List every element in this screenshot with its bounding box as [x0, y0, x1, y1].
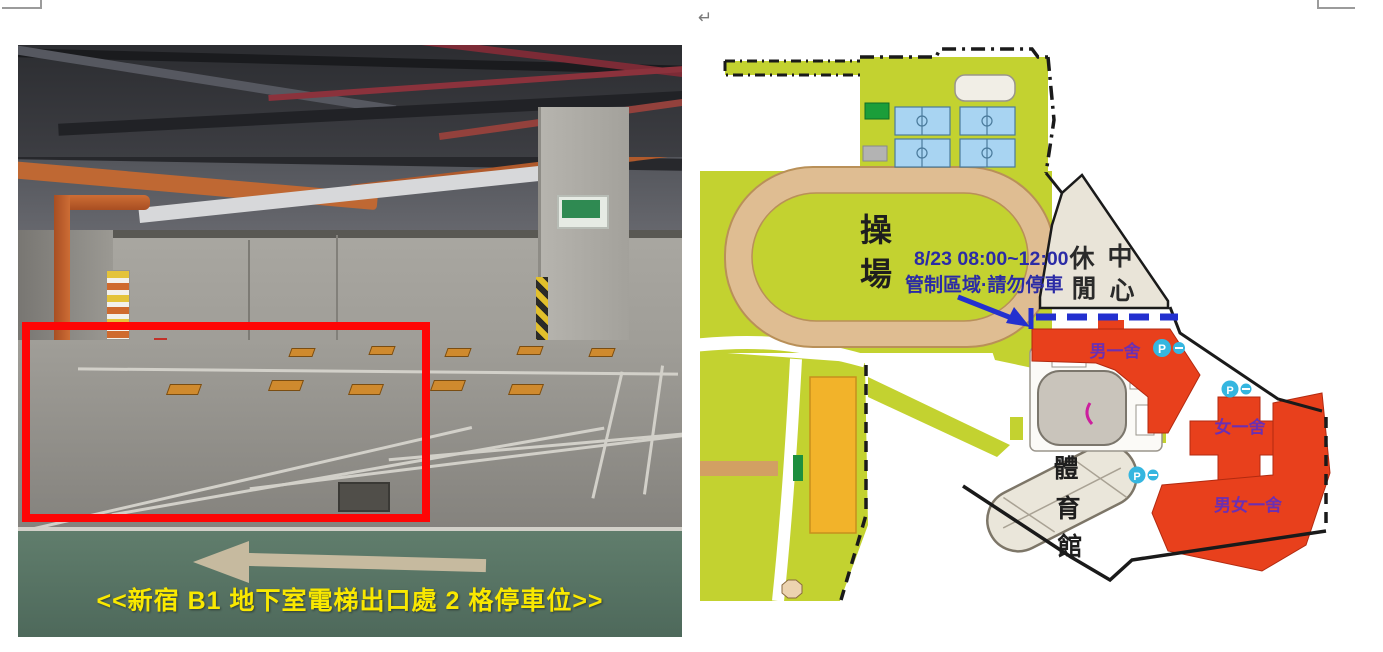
parking-line	[643, 365, 664, 494]
complex-round-hall	[1038, 371, 1126, 445]
wheel-stop	[516, 346, 543, 355]
notice-date-time: 8/23 08:00~12:00	[914, 248, 1069, 270]
photo-caption: <<新宿 B1 地下室電梯出口處 2 格停車位>>	[18, 581, 682, 617]
top-white-building	[955, 75, 1015, 101]
highlight-red-box	[22, 322, 430, 522]
parking-p-icon: P	[1158, 342, 1166, 356]
leisure-label: 中	[1107, 243, 1132, 271]
parking-p-icon: P	[1133, 471, 1140, 483]
floor-arrow-icon	[193, 541, 249, 583]
exit-sign	[557, 195, 609, 229]
dorm-female-1-label: 女一舍	[1215, 417, 1266, 437]
document-page: ↵	[0, 0, 1383, 652]
floor-arrow-tail	[246, 553, 486, 572]
campus-map: 操 場	[700, 45, 1360, 602]
map-green-arm	[725, 61, 860, 75]
small-hexagon-structure	[782, 580, 802, 598]
small-green-kiosk	[793, 455, 803, 481]
tan-road-stub	[700, 461, 778, 476]
notice-no-parking: 管制區域·請勿停車	[905, 273, 1063, 296]
leisure-label: 心	[1109, 277, 1134, 305]
lane-edge-line	[18, 527, 682, 531]
parking-marker-female-dorm: P	[1222, 381, 1252, 398]
dorm-male-female-1-label: 男女一舍	[1214, 495, 1282, 515]
wheel-stop	[588, 348, 615, 357]
playground-label: 操	[860, 212, 892, 248]
map-green-patch	[1010, 417, 1023, 440]
parking-garage-photo[interactable]: <<新宿 B1 地下室電梯出口處 2 格停車位>>	[18, 45, 682, 637]
small-gray-building	[863, 146, 887, 161]
gym-label: 體	[1053, 455, 1078, 483]
orange-lot	[810, 377, 856, 533]
table-cell-corner-mark-left	[2, 0, 42, 9]
dorm-male-1-label: 男一舍	[1090, 341, 1141, 361]
small-green-building	[865, 103, 889, 119]
parking-marker-gym: P	[1129, 467, 1159, 484]
exit-sign-icon	[562, 200, 600, 218]
wheel-stop	[430, 380, 466, 391]
parking-line	[591, 371, 623, 498]
parking-p-icon: P	[1226, 385, 1233, 397]
leisure-label: 休	[1068, 245, 1095, 273]
wheel-stop	[444, 348, 471, 357]
table-cell-corner-mark-right	[1317, 0, 1355, 9]
wheel-stop	[508, 384, 544, 395]
map-green-strip	[868, 377, 1010, 457]
gym-label: 育	[1055, 494, 1080, 523]
playground-label: 場	[860, 256, 892, 292]
leisure-label: 閒	[1071, 275, 1096, 303]
paragraph-return-icon: ↵	[698, 8, 712, 28]
campus-map-figure[interactable]: 操 場	[700, 45, 1360, 602]
